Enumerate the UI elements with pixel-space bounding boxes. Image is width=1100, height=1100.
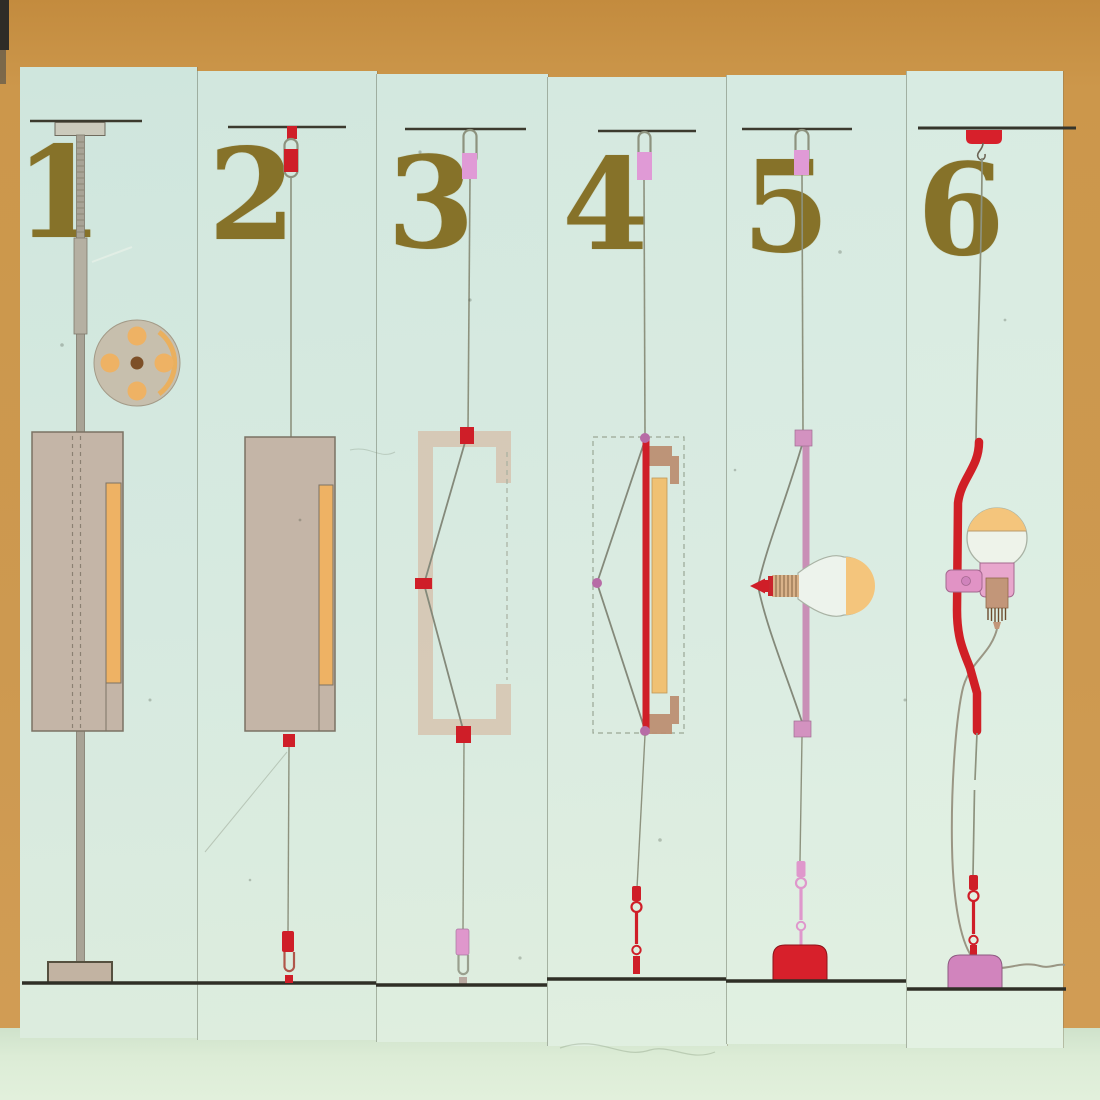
panel-3-number: 3	[376, 140, 486, 266]
panel-6-number: 6	[906, 147, 1016, 273]
panel-2-number: 2	[197, 132, 307, 258]
scan-edge-artifact-2	[0, 50, 6, 84]
poster-root: 1 2 3 4 5 6	[0, 0, 1100, 1100]
panel-5-number: 5	[731, 144, 841, 270]
panel-1-number: 1	[4, 130, 114, 256]
scan-edge-artifact	[0, 0, 9, 50]
panel-4-number: 4	[551, 142, 661, 268]
